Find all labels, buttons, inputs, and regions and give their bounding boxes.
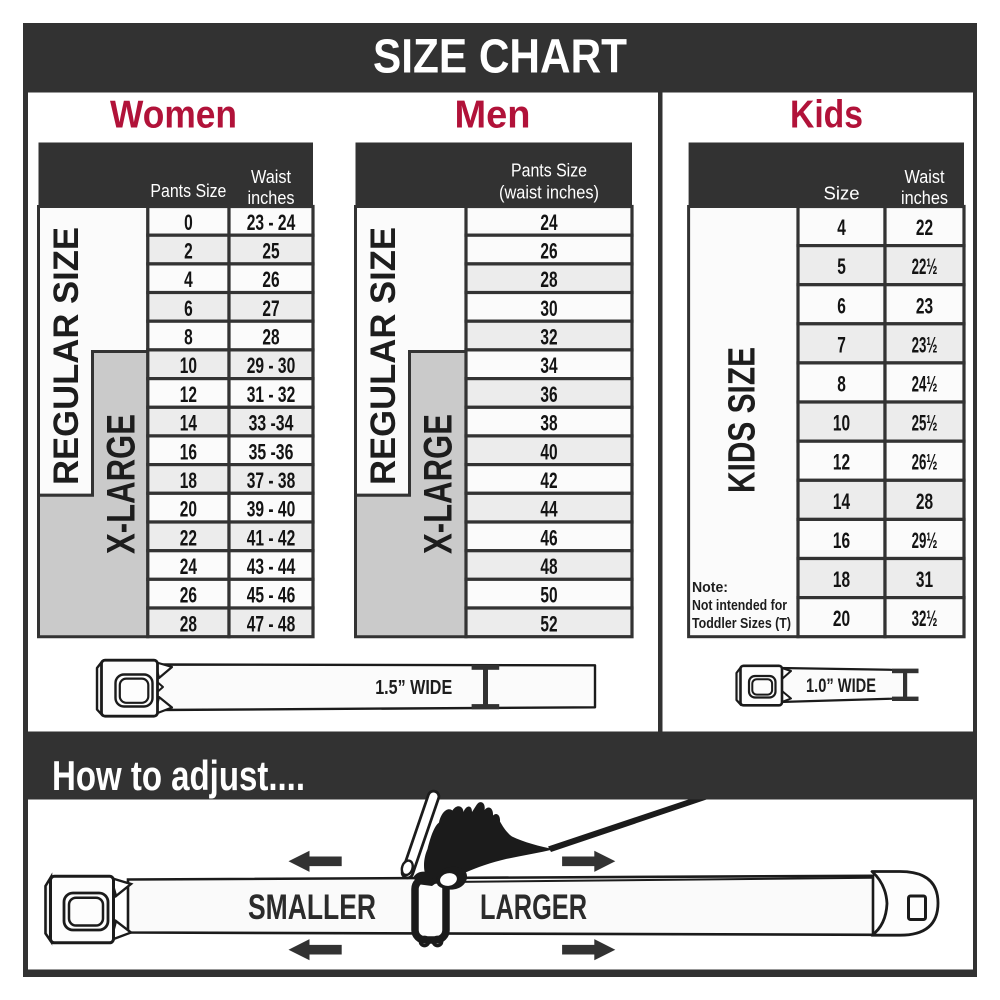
svg-text:25: 25 — [262, 239, 279, 264]
svg-text:39 - 40: 39 - 40 — [247, 497, 296, 522]
svg-text:14: 14 — [180, 411, 198, 436]
svg-text:6: 6 — [837, 293, 846, 318]
svg-text:20: 20 — [180, 497, 197, 522]
svg-text:18: 18 — [833, 567, 850, 592]
svg-text:48: 48 — [540, 554, 557, 579]
svg-text:16: 16 — [833, 528, 850, 553]
svg-text:6: 6 — [184, 296, 193, 321]
svg-text:23 - 24: 23 - 24 — [247, 210, 296, 235]
svg-text:SIZE CHART: SIZE CHART — [373, 31, 627, 84]
svg-text:Women: Women — [110, 94, 237, 137]
svg-text:23½: 23½ — [912, 332, 938, 357]
svg-text:29½: 29½ — [912, 528, 938, 553]
svg-text:28: 28 — [916, 489, 933, 514]
svg-text:X-LARGE: X-LARGE — [417, 414, 461, 554]
svg-text:32: 32 — [540, 325, 557, 350]
svg-text:24: 24 — [540, 210, 558, 235]
svg-text:26: 26 — [262, 267, 279, 292]
svg-text:50: 50 — [540, 583, 557, 608]
svg-text:33 -34: 33 -34 — [249, 411, 294, 436]
svg-text:46: 46 — [540, 525, 557, 550]
svg-text:10: 10 — [833, 411, 850, 436]
svg-text:28: 28 — [180, 611, 197, 636]
svg-text:LARGER: LARGER — [480, 888, 587, 927]
svg-text:10: 10 — [180, 353, 197, 378]
svg-text:41 - 42: 41 - 42 — [247, 525, 296, 550]
svg-text:36: 36 — [540, 382, 557, 407]
svg-text:Pants Size: Pants Size — [511, 161, 587, 181]
svg-text:43 - 44: 43 - 44 — [247, 554, 296, 579]
svg-text:37 - 38: 37 - 38 — [247, 468, 296, 493]
svg-text:38: 38 — [540, 411, 557, 436]
svg-text:Men: Men — [455, 94, 531, 137]
svg-text:25½: 25½ — [912, 411, 938, 436]
svg-text:4: 4 — [184, 267, 193, 292]
svg-text:KIDS SIZE: KIDS SIZE — [722, 347, 764, 493]
svg-text:29 - 30: 29 - 30 — [247, 353, 296, 378]
svg-text:SMALLER: SMALLER — [248, 888, 376, 927]
svg-text:28: 28 — [262, 325, 279, 350]
svg-text:22: 22 — [916, 215, 933, 240]
svg-text:4: 4 — [837, 215, 846, 240]
svg-text:1.0” WIDE: 1.0” WIDE — [806, 675, 876, 697]
svg-text:(waist inches): (waist inches) — [499, 183, 599, 203]
svg-text:Toddler Sizes (T): Toddler Sizes (T) — [692, 615, 791, 632]
svg-text:14: 14 — [833, 489, 851, 514]
svg-text:44: 44 — [540, 497, 558, 522]
svg-text:X-LARGE: X-LARGE — [100, 414, 144, 554]
svg-text:12: 12 — [180, 382, 197, 407]
svg-text:26½: 26½ — [912, 450, 938, 475]
svg-text:8: 8 — [184, 325, 193, 350]
svg-text:Note:: Note: — [692, 579, 728, 596]
svg-text:45 - 46: 45 - 46 — [247, 583, 296, 608]
svg-text:22½: 22½ — [912, 254, 938, 279]
svg-text:How to adjust....: How to adjust.... — [52, 752, 305, 799]
svg-text:22: 22 — [180, 525, 197, 550]
svg-text:27: 27 — [262, 296, 279, 321]
svg-text:Waist: Waist — [905, 167, 945, 187]
svg-text:35 -36: 35 -36 — [249, 439, 294, 464]
svg-text:0: 0 — [184, 210, 193, 235]
svg-text:31 - 32: 31 - 32 — [247, 382, 296, 407]
svg-text:16: 16 — [180, 439, 197, 464]
svg-text:26: 26 — [180, 583, 197, 608]
svg-text:12: 12 — [833, 450, 850, 475]
svg-text:26: 26 — [540, 239, 557, 264]
svg-text:2: 2 — [184, 239, 193, 264]
svg-text:40: 40 — [540, 439, 557, 464]
svg-text:5: 5 — [837, 254, 846, 279]
svg-text:Not intended for: Not intended for — [692, 597, 787, 614]
svg-text:Waist: Waist — [251, 167, 291, 187]
svg-text:7: 7 — [837, 332, 846, 357]
svg-text:Pants Size: Pants Size — [150, 181, 226, 201]
svg-text:52: 52 — [540, 611, 557, 636]
svg-text:23: 23 — [916, 293, 933, 318]
svg-text:REGULAR SIZE: REGULAR SIZE — [364, 227, 403, 485]
svg-text:34: 34 — [540, 353, 558, 378]
svg-text:47 - 48: 47 - 48 — [247, 611, 296, 636]
svg-text:18: 18 — [180, 468, 197, 493]
svg-text:31: 31 — [916, 567, 933, 592]
svg-text:32½: 32½ — [912, 606, 938, 631]
svg-text:Kids: Kids — [790, 94, 863, 137]
svg-text:24: 24 — [180, 554, 198, 579]
svg-text:28: 28 — [540, 267, 557, 292]
svg-text:42: 42 — [540, 468, 557, 493]
svg-text:REGULAR SIZE: REGULAR SIZE — [47, 227, 86, 485]
svg-text:8: 8 — [837, 372, 846, 397]
svg-text:1.5” WIDE: 1.5” WIDE — [375, 677, 452, 699]
svg-text:24½: 24½ — [912, 372, 938, 397]
svg-text:30: 30 — [540, 296, 557, 321]
svg-text:Size: Size — [824, 184, 860, 204]
svg-text:20: 20 — [833, 606, 850, 631]
